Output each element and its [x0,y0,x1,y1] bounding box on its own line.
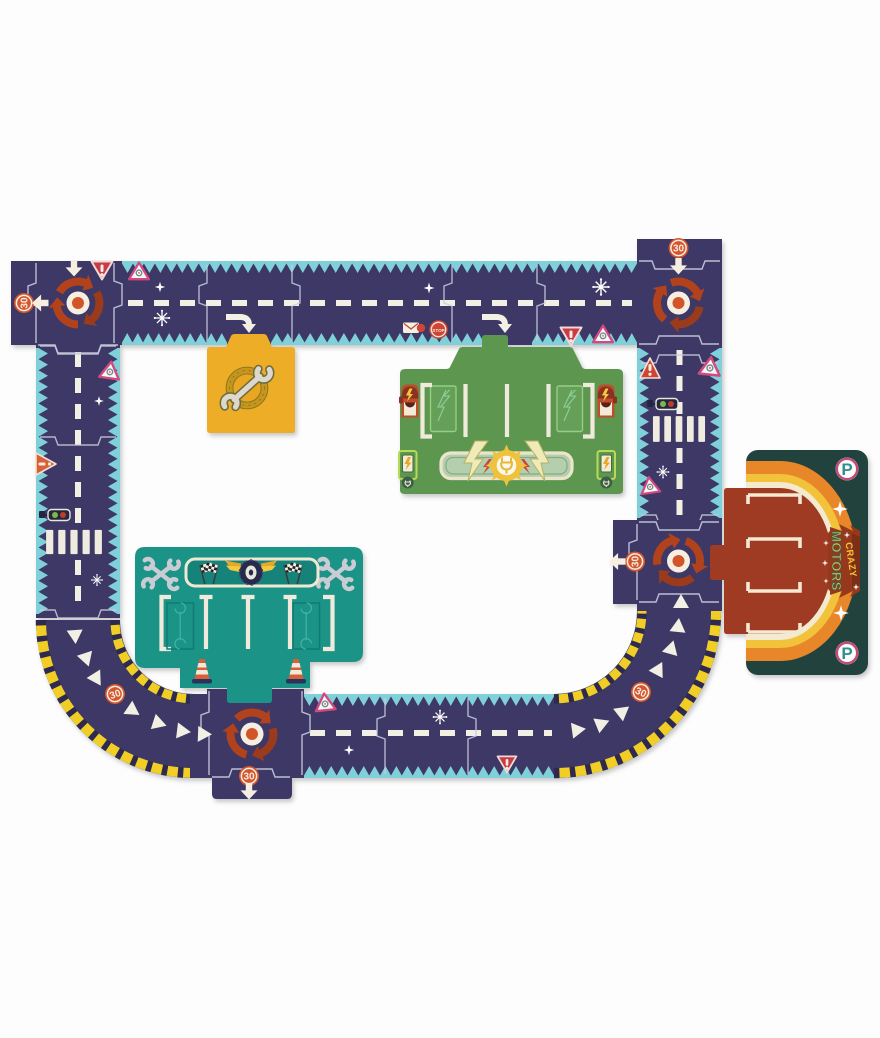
svg-text:P: P [841,460,852,479]
svg-text:STOP: STOP [432,328,444,333]
svg-text:MOTORS: MOTORS [829,531,844,591]
svg-text:P: P [841,644,852,663]
